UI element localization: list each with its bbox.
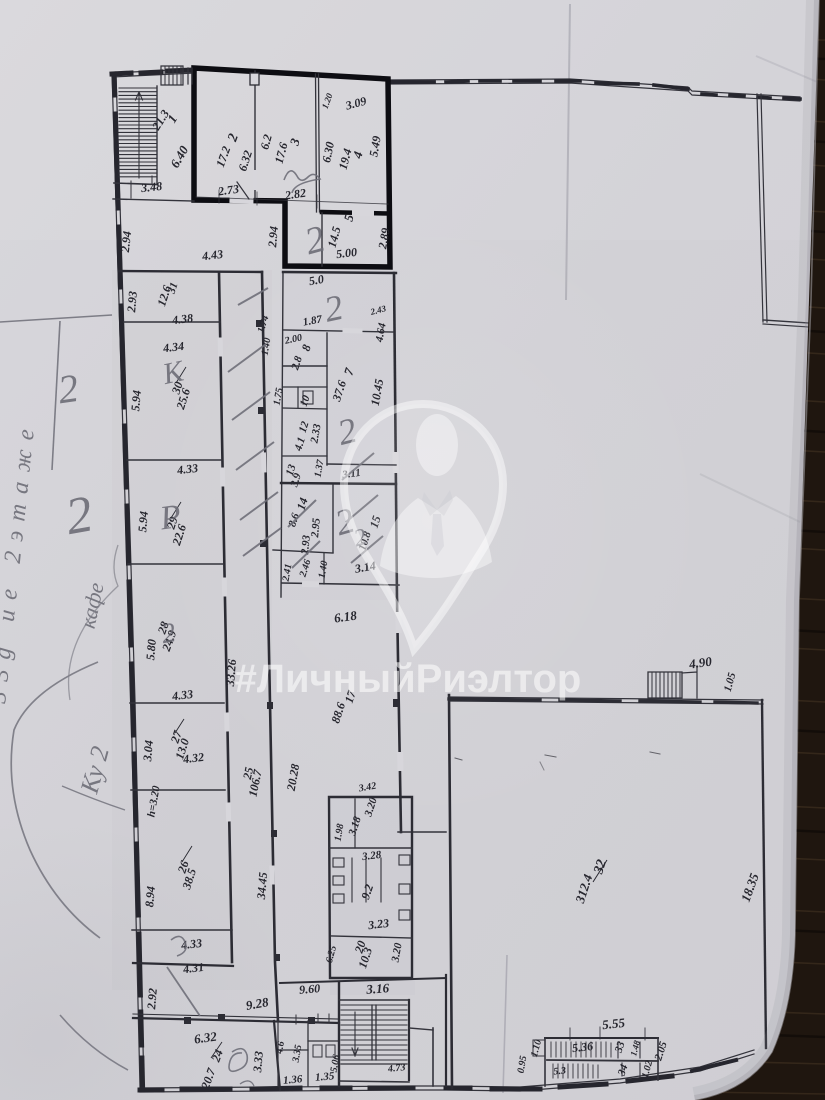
svg-text:1.36: 1.36 xyxy=(283,1073,304,1087)
svg-text:5.94: 5.94 xyxy=(128,390,144,412)
svg-text:4.32: 4.32 xyxy=(181,750,205,767)
svg-text:3.33: 3.33 xyxy=(250,1051,266,1074)
svg-text:5.55: 5.55 xyxy=(601,1015,626,1032)
svg-text:4.38: 4.38 xyxy=(170,311,194,328)
svg-text:8.94: 8.94 xyxy=(142,886,158,908)
svg-text:4.6: 4.6 xyxy=(274,1040,287,1055)
svg-text:5.80: 5.80 xyxy=(143,639,159,661)
svg-text:2.93: 2.93 xyxy=(124,291,140,314)
svg-text:5.0: 5.0 xyxy=(308,272,325,288)
svg-text:5.94: 5.94 xyxy=(135,511,151,533)
svg-text:3.48: 3.48 xyxy=(139,179,162,195)
svg-text:3.16: 3.16 xyxy=(365,980,390,997)
svg-text:#ЛичныйРиэлтор: #ЛичныйРиэлтор xyxy=(235,657,582,701)
svg-text:3.23: 3.23 xyxy=(366,916,390,933)
svg-text:2.92: 2.92 xyxy=(144,988,160,1011)
svg-text:6.18: 6.18 xyxy=(333,607,358,625)
svg-text:3.04: 3.04 xyxy=(140,740,156,763)
svg-text:3.28: 3.28 xyxy=(360,849,382,863)
svg-text:4.33: 4.33 xyxy=(170,687,194,704)
svg-text:6.32: 6.32 xyxy=(193,1028,218,1046)
svg-text:2.94: 2.94 xyxy=(118,230,134,253)
svg-text:9.60: 9.60 xyxy=(299,981,321,997)
svg-text:5.00: 5.00 xyxy=(335,245,358,261)
svg-text:4.73: 4.73 xyxy=(386,1062,406,1075)
svg-text:4.43: 4.43 xyxy=(200,247,224,264)
svg-text:4.33: 4.33 xyxy=(175,461,199,478)
svg-text:4.34: 4.34 xyxy=(161,339,185,356)
svg-text:5.3: 5.3 xyxy=(553,1065,567,1077)
svg-text:2.93: 2.93 xyxy=(299,534,313,556)
svg-text:2.94: 2.94 xyxy=(265,226,281,249)
svg-text:34.45: 34.45 xyxy=(254,872,270,901)
svg-text:5.36: 5.36 xyxy=(571,1039,593,1055)
svg-text:4.31: 4.31 xyxy=(181,960,205,977)
